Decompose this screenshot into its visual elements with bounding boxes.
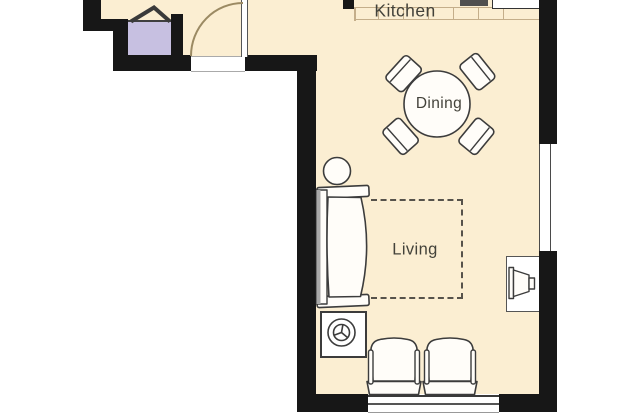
dining-label: Dining xyxy=(416,95,462,113)
furniture-layer xyxy=(0,0,640,417)
living-label: Living xyxy=(392,241,438,260)
faucet-chevron-icon xyxy=(131,8,170,22)
kitchen-label: Kitchen xyxy=(374,1,435,22)
washer-drum-icon xyxy=(328,319,355,346)
side-table-icon xyxy=(324,158,351,185)
tv-icon xyxy=(509,268,535,299)
door-swing-arc-icon xyxy=(191,3,243,56)
armchair-icon xyxy=(423,338,477,395)
sofa-icon xyxy=(317,185,370,307)
floor-plan: Kitchen Dining Living xyxy=(0,0,640,417)
armchair-icon xyxy=(367,338,421,395)
